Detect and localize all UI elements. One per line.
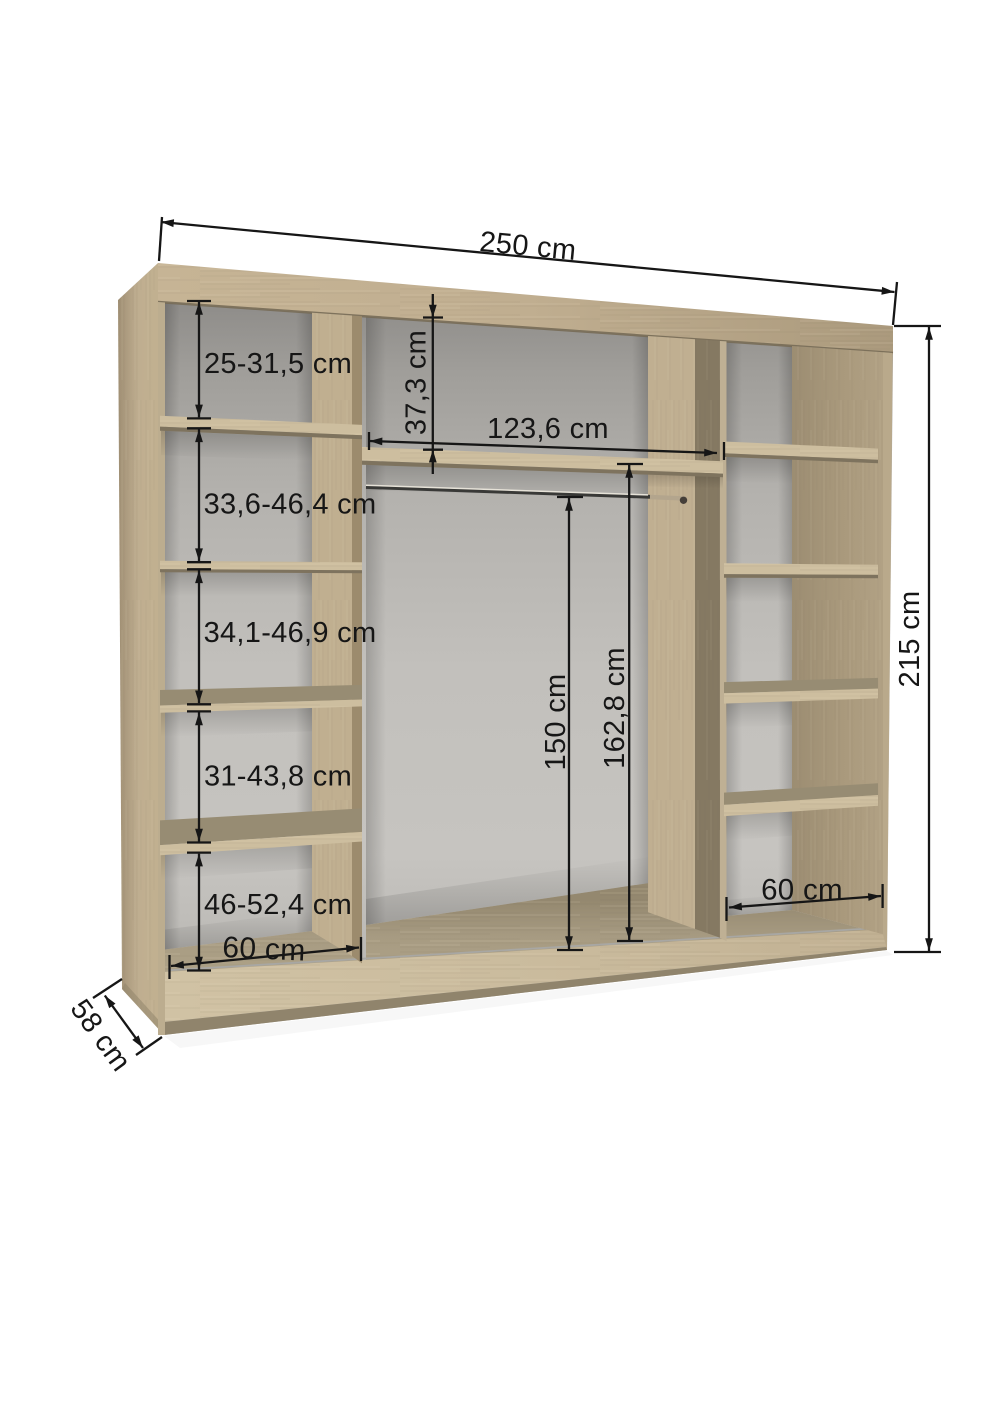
svg-text:33,6-46,4 cm: 33,6-46,4 cm [204, 488, 377, 520]
svg-text:34,1-46,9 cm: 34,1-46,9 cm [204, 617, 377, 649]
svg-text:37,3 cm: 37,3 cm [400, 330, 432, 435]
svg-text:25-31,5 cm: 25-31,5 cm [204, 348, 352, 380]
svg-text:215 cm: 215 cm [894, 591, 926, 688]
svg-text:60 cm: 60 cm [222, 931, 307, 968]
svg-text:123,6 cm: 123,6 cm [487, 413, 609, 445]
svg-text:31-43,8 cm: 31-43,8 cm [204, 760, 352, 792]
svg-text:46-52,4 cm: 46-52,4 cm [204, 889, 352, 921]
svg-text:162,8 cm: 162,8 cm [599, 647, 631, 769]
svg-text:150 cm: 150 cm [540, 674, 572, 771]
svg-text:60 cm: 60 cm [761, 874, 843, 907]
